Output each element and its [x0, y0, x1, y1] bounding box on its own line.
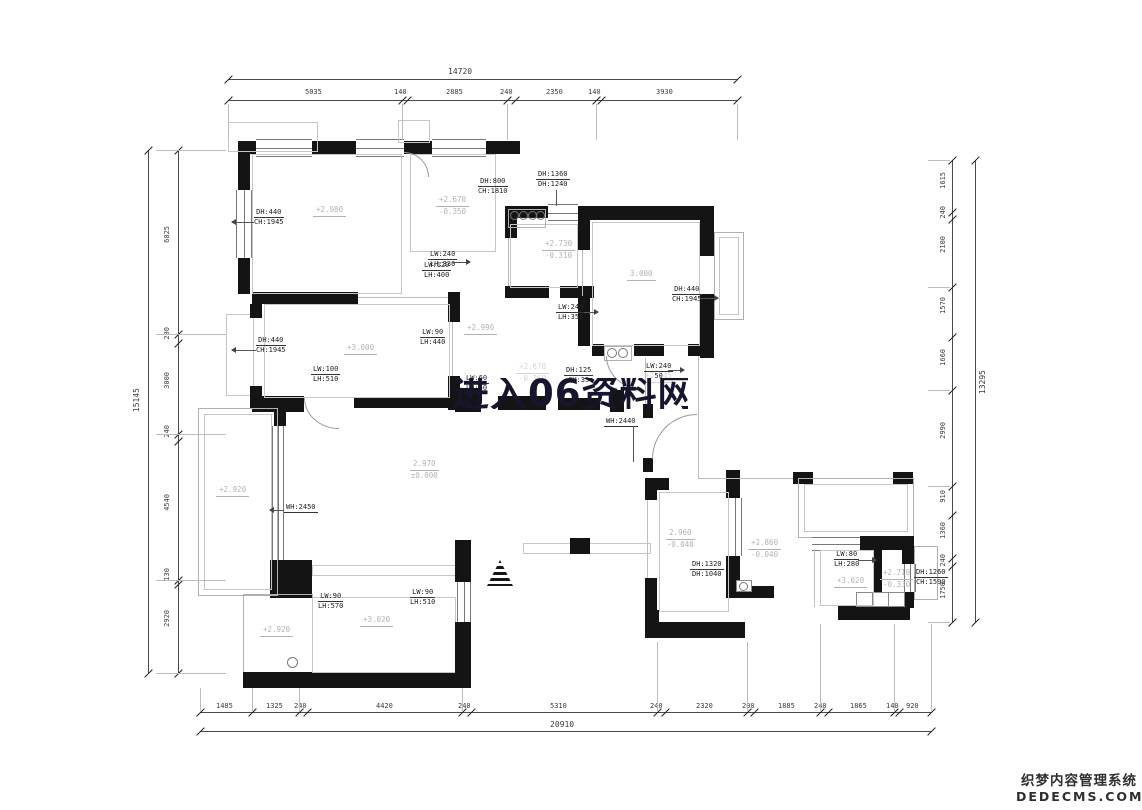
opening-annotation: LW:90LH:440: [420, 328, 445, 348]
opening-annotation: DH:1320DH:1040: [690, 560, 724, 580]
level-mark: +2.990: [464, 323, 497, 335]
floor-plan-drawing: 14720 5035 140 2885 240 2350 140 3930 15…: [0, 0, 1142, 810]
cms-logo-chinese: 织梦内容管理系统: [1016, 769, 1142, 789]
level-mark: +3.000: [344, 343, 377, 355]
level-mark: 3.000: [627, 269, 656, 281]
fixture: [888, 592, 905, 607]
level-mark: 2.960-0.040: [666, 528, 695, 550]
level-mark: +2.730-0.310: [542, 239, 575, 261]
door-swing: [304, 398, 339, 429]
fixture: [872, 592, 889, 607]
window: [236, 190, 252, 258]
opening-annotation: DH:440CH:1945: [256, 336, 286, 356]
level-mark: +3.020: [360, 615, 393, 627]
opening-annotation: DH:1260CH:1590: [914, 568, 948, 588]
cms-logo[interactable]: 织梦内容管理系统 DEDECMS.COM: [1016, 769, 1142, 804]
window: [457, 582, 471, 622]
dim-total-left: 15145: [132, 388, 141, 412]
opening-annotation: DH:800CH:1810: [478, 177, 508, 197]
window-bay: [226, 314, 254, 396]
level-mark: +2.920: [260, 625, 293, 637]
cms-logo-domain: DEDECMS.COM: [1016, 789, 1142, 804]
opening-annotation: DH:440CH:1945: [254, 208, 284, 228]
level-mark: 2.970±0.000: [410, 459, 439, 481]
level-mark: +3.020: [834, 576, 867, 588]
window-bay: [228, 122, 318, 152]
level-mark: +2.980: [313, 205, 346, 217]
dim-total-right: 13295: [978, 370, 987, 394]
door-swing: [652, 414, 697, 459]
level-mark: +2.860-0.040: [748, 538, 781, 560]
opening-annotation: LW:120LH:400: [422, 261, 451, 281]
opening-annotation: DH:440CH:1945: [672, 285, 702, 305]
dim-total-top: 14720: [448, 67, 472, 76]
dim-total-bottom: 20910: [550, 720, 574, 729]
window: [548, 204, 578, 221]
opening-annotation: DH:1360DH:1240: [536, 170, 570, 190]
watermark: 进入06资料网: [452, 378, 688, 409]
hatched-triangle-icon: [487, 560, 513, 586]
opening-annotation: LW:100LH:510: [311, 365, 340, 385]
opening-annotation: LW:90LH:570: [318, 592, 343, 612]
opening-annotation: WH:2450: [284, 503, 318, 513]
level-mark: +2.920: [216, 485, 249, 497]
window: [728, 498, 742, 556]
window-sill: [312, 565, 457, 576]
window: [812, 537, 862, 551]
opening-annotation: LW:240LH:350: [556, 303, 585, 323]
floor-drain: [287, 657, 298, 668]
level-mark: +2.670-0.350: [436, 195, 469, 217]
opening-annotation: LW:80LH:280: [834, 550, 859, 570]
opening-annotation: LW:90LH:510: [410, 588, 435, 608]
level-mark: +2.710-0.330: [880, 568, 913, 590]
